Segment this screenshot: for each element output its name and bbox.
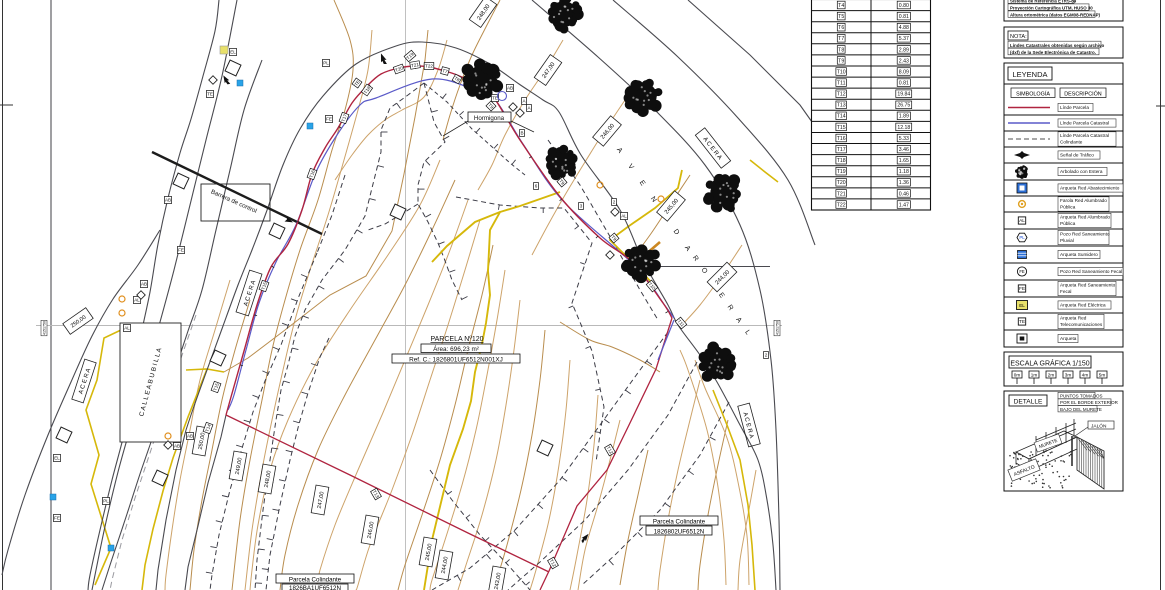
svg-text:Arqueta Sumidero: Arqueta Sumidero bbox=[1060, 252, 1098, 257]
svg-text:Línde Parcela Catastral: Línde Parcela Catastral bbox=[1060, 133, 1109, 138]
svg-text:4151750: 4151750 bbox=[42, 321, 46, 335]
svg-text:PL: PL bbox=[103, 499, 109, 504]
svg-text:Arqueta Red Saneamiento: Arqueta Red Saneamiento bbox=[1060, 283, 1116, 288]
svg-text:Arbolado con Estera: Arbolado con Estera bbox=[1060, 169, 1103, 174]
svg-text:T6: T6 bbox=[838, 25, 844, 31]
svg-text:0.80: 0.80 bbox=[899, 3, 909, 9]
svg-text:6: 6 bbox=[535, 184, 538, 189]
svg-text:5.33: 5.33 bbox=[899, 136, 909, 142]
svg-text:T19: T19 bbox=[837, 169, 846, 175]
svg-text:EL: EL bbox=[230, 50, 236, 55]
svg-text:1.65: 1.65 bbox=[899, 158, 909, 164]
svg-text:NOTA:: NOTA: bbox=[1010, 34, 1027, 40]
svg-text:5.37: 5.37 bbox=[899, 36, 909, 42]
svg-text:2.43: 2.43 bbox=[899, 58, 909, 64]
svg-text:PL: PL bbox=[1019, 235, 1025, 240]
svg-text:AB: AB bbox=[174, 444, 180, 449]
svg-text:1.18: 1.18 bbox=[899, 169, 909, 175]
svg-text:19.84: 19.84 bbox=[897, 92, 910, 98]
svg-text:Proyección Cartográfica UTM,: Proyección Cartográfica UTM, HUSO 30 bbox=[1010, 5, 1093, 10]
svg-text:1.47: 1.47 bbox=[899, 202, 909, 208]
svg-text:T17: T17 bbox=[837, 147, 846, 153]
svg-text:T10: T10 bbox=[837, 69, 846, 75]
svg-text:TE: TE bbox=[1019, 319, 1025, 325]
svg-text:4m: 4m bbox=[1082, 373, 1089, 378]
svg-text:BAJO DEL MURETE: BAJO DEL MURETE bbox=[1060, 407, 1102, 412]
svg-text:AL: AL bbox=[1019, 218, 1025, 224]
svg-text:0m: 0m bbox=[1014, 373, 1021, 378]
svg-text:PL: PL bbox=[323, 61, 329, 66]
svg-text:Arqueta: Arqueta bbox=[1060, 336, 1077, 341]
svg-text:LEYENDA: LEYENDA bbox=[1012, 70, 1047, 79]
svg-text:Hormigona: Hormigona bbox=[474, 115, 505, 122]
svg-text:5m: 5m bbox=[1099, 373, 1106, 378]
svg-text:Pública: Pública bbox=[1060, 204, 1076, 209]
svg-text:8.09: 8.09 bbox=[899, 69, 909, 75]
svg-text:1826802UF6512N: 1826802UF6512N bbox=[654, 528, 705, 535]
svg-text:1.89: 1.89 bbox=[899, 114, 909, 120]
svg-text:T5: T5 bbox=[838, 14, 844, 20]
svg-text:POR EL BORDE EXTERIOR: POR EL BORDE EXTERIOR bbox=[1060, 400, 1119, 405]
svg-text:3m: 3m bbox=[1065, 373, 1072, 378]
svg-text:Pozo Red Saneamiento Fecal: Pozo Red Saneamiento Fecal bbox=[1060, 269, 1122, 274]
svg-text:T4: T4 bbox=[838, 3, 844, 9]
svg-text:T12: T12 bbox=[837, 92, 846, 98]
svg-text:AL: AL bbox=[124, 326, 130, 331]
svg-text:Arqueta Red Alumbrado: Arqueta Red Alumbrado bbox=[1060, 215, 1110, 220]
svg-text:0.81: 0.81 bbox=[899, 14, 909, 20]
svg-text:2: 2 bbox=[765, 353, 768, 358]
svg-text:0.46: 0.46 bbox=[899, 191, 909, 197]
svg-text:4.88: 4.88 bbox=[899, 25, 909, 31]
svg-text:B: B bbox=[520, 131, 523, 136]
svg-text:Pozo Red Saneamiento: Pozo Red Saneamiento bbox=[1060, 232, 1110, 237]
svg-text:PUNTOS TOMADOS: PUNTOS TOMADOS bbox=[1060, 394, 1103, 399]
svg-text:AB: AB bbox=[507, 86, 513, 91]
svg-text:Área: 696,23 m²: Área: 696,23 m² bbox=[433, 344, 479, 353]
svg-text:JALÓN: JALÓN bbox=[1091, 422, 1107, 429]
svg-text:Arqueta Red Abastecimiento: Arqueta Red Abastecimiento bbox=[1060, 185, 1120, 190]
svg-text:Pluvial: Pluvial bbox=[1060, 238, 1074, 243]
svg-text:2: 2 bbox=[613, 200, 616, 205]
svg-text:Colindante: Colindante bbox=[1060, 139, 1083, 144]
svg-text:1m: 1m bbox=[1031, 373, 1038, 378]
svg-text:FE: FE bbox=[1019, 286, 1025, 292]
svg-text:Parcela Colindante: Parcela Colindante bbox=[653, 518, 706, 525]
svg-text:1826BA1UF6512N: 1826BA1UF6512N bbox=[289, 585, 341, 590]
svg-text:Líndes Catastrales obtenidas s: Líndes Catastrales obtenidas según archi… bbox=[1010, 43, 1105, 48]
svg-text:12.18: 12.18 bbox=[897, 125, 910, 131]
svg-text:T8: T8 bbox=[838, 47, 844, 53]
svg-text:0.81: 0.81 bbox=[899, 81, 909, 87]
svg-text:Parcela Colindante: Parcela Colindante bbox=[289, 576, 342, 583]
svg-text:T7: T7 bbox=[838, 36, 844, 42]
svg-text:SIMBOLOGÍA: SIMBOLOGÍA bbox=[1016, 90, 1050, 97]
svg-text:Fecal: Fecal bbox=[1060, 289, 1071, 294]
svg-text:T16: T16 bbox=[837, 136, 846, 142]
svg-text:Altura ortométrica (datos EGM: Altura ortométrica (datos EGM08-REDNAP) bbox=[1010, 12, 1101, 17]
svg-text:Pública: Pública bbox=[1060, 221, 1076, 226]
svg-text:Arqueta Red: Arqueta Red bbox=[1060, 316, 1087, 321]
svg-text:EL: EL bbox=[54, 456, 60, 461]
svg-text:3: 3 bbox=[580, 204, 583, 209]
svg-text:2.89: 2.89 bbox=[899, 47, 909, 53]
svg-text:EL: EL bbox=[1019, 303, 1025, 308]
svg-text:T21: T21 bbox=[837, 191, 846, 197]
svg-text:FE: FE bbox=[1019, 269, 1025, 274]
svg-text:AB: AB bbox=[187, 434, 193, 439]
svg-text:FE: FE bbox=[54, 516, 60, 521]
svg-text:T9: T9 bbox=[838, 58, 844, 64]
svg-text:3.46: 3.46 bbox=[899, 147, 909, 153]
svg-text:Ref. C.: 1826801UF6512N001XJ: Ref. C.: 1826801UF6512N001XJ bbox=[409, 356, 503, 363]
svg-text:26.75: 26.75 bbox=[897, 103, 910, 109]
svg-text:T22: T22 bbox=[425, 64, 433, 69]
svg-text:T11: T11 bbox=[837, 81, 846, 87]
svg-text:PARCELA Nº120: PARCELA Nº120 bbox=[430, 336, 483, 343]
svg-text:DESCRIPCIÓN: DESCRIPCIÓN bbox=[1064, 90, 1102, 97]
svg-text:(dxf) de la Sede Electrónica d: (dxf) de la Sede Electrónica de Catastro… bbox=[1010, 50, 1096, 55]
svg-text:TE: TE bbox=[207, 92, 213, 97]
svg-text:ESCALA GRÁFICA 1/150: ESCALA GRÁFICA 1/150 bbox=[1010, 359, 1089, 368]
svg-text:1.36: 1.36 bbox=[899, 180, 909, 186]
svg-text:DETALLE: DETALLE bbox=[1014, 399, 1043, 406]
svg-text:Línde Parcela: Línde Parcela bbox=[1060, 105, 1089, 110]
svg-text:Señal de Tráfico: Señal de Tráfico bbox=[1060, 152, 1094, 157]
svg-text:T14: T14 bbox=[837, 114, 846, 120]
svg-text:T20: T20 bbox=[837, 180, 846, 186]
svg-text:Farola Red Alumbrado: Farola Red Alumbrado bbox=[1060, 198, 1107, 203]
svg-text:AL: AL bbox=[621, 214, 627, 219]
svg-text:AL: AL bbox=[134, 298, 140, 303]
svg-text:T22: T22 bbox=[837, 202, 846, 208]
svg-text:T15: T15 bbox=[837, 125, 846, 131]
svg-text:AB: AB bbox=[141, 282, 147, 287]
svg-text:4151750: 4151750 bbox=[775, 321, 779, 335]
svg-text:T18: T18 bbox=[837, 158, 846, 164]
svg-text:T13: T13 bbox=[837, 103, 846, 109]
svg-text:Línde Parcela Catastral: Línde Parcela Catastral bbox=[1060, 120, 1109, 125]
svg-text:Sistema de Referencia ETRS-89: Sistema de Referencia ETRS-89 bbox=[1010, 0, 1077, 3]
svg-text:Arqueta Red Eléctrica: Arqueta Red Eléctrica bbox=[1060, 302, 1106, 307]
svg-text:FE: FE bbox=[326, 117, 332, 122]
svg-text:AB: AB bbox=[165, 198, 171, 203]
svg-text:FE: FE bbox=[178, 248, 184, 253]
svg-text:2m: 2m bbox=[1048, 373, 1055, 378]
svg-text:Telecomunicaciones: Telecomunicaciones bbox=[1060, 322, 1103, 327]
